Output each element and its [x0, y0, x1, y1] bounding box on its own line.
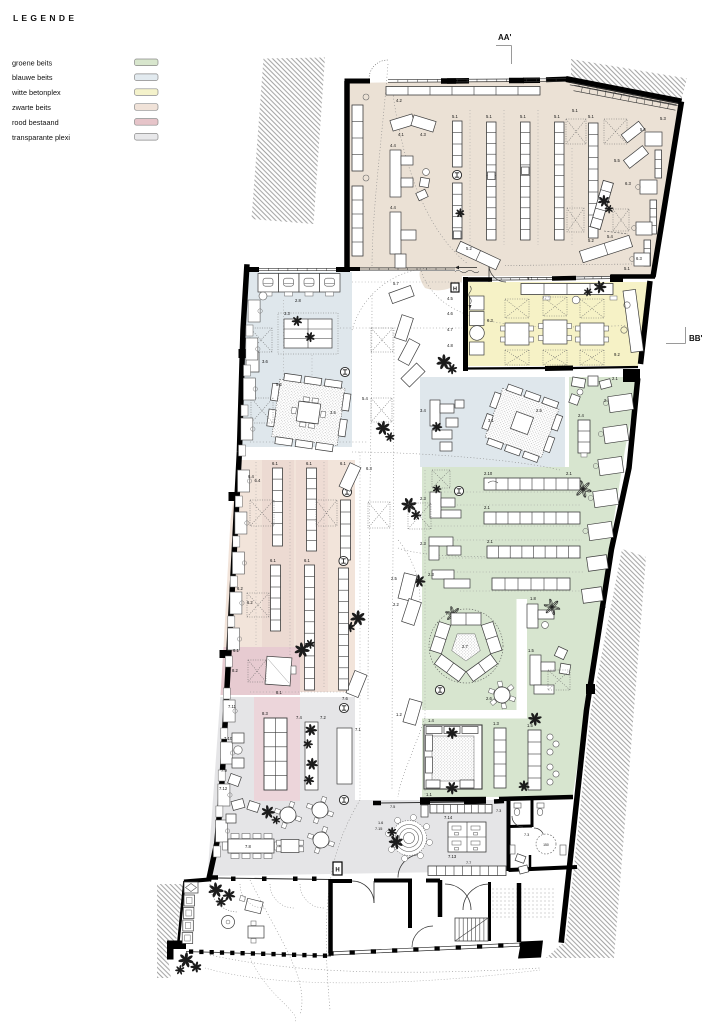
svg-text:7.11: 7.11 [228, 704, 237, 709]
svg-text:7.1: 7.1 [355, 727, 361, 732]
svg-text:7.3: 7.3 [524, 833, 529, 837]
svg-text:2.2: 2.2 [393, 602, 399, 607]
svg-text:9.1: 9.1 [527, 276, 533, 281]
svg-text:1.8: 1.8 [600, 604, 606, 609]
svg-text:5.4: 5.4 [362, 396, 368, 401]
svg-text:7.7: 7.7 [466, 861, 471, 865]
svg-text:3.6: 3.6 [262, 359, 268, 364]
svg-text:2.5: 2.5 [391, 576, 397, 581]
svg-text:7.5: 7.5 [390, 805, 395, 809]
svg-text:5.2: 5.2 [466, 246, 472, 251]
svg-text:1.1: 1.1 [426, 792, 432, 797]
svg-text:4.3: 4.3 [420, 132, 426, 137]
svg-text:5.4: 5.4 [607, 234, 613, 239]
svg-text:6.3: 6.3 [625, 181, 631, 186]
svg-text:1.4: 1.4 [428, 718, 434, 723]
svg-text:3.4: 3.4 [420, 408, 426, 413]
svg-text:5.6: 5.6 [640, 127, 646, 132]
svg-text:6.1: 6.1 [270, 558, 276, 563]
svg-text:4.1: 4.1 [398, 132, 404, 137]
svg-text:2.1: 2.1 [484, 505, 490, 510]
svg-text:1.6: 1.6 [378, 821, 383, 825]
svg-text:5.7: 5.7 [393, 281, 399, 286]
svg-text:5.2: 5.2 [276, 382, 282, 387]
svg-text:6.1: 6.1 [340, 461, 346, 466]
svg-text:4.4: 4.4 [390, 205, 396, 210]
svg-text:2.5: 2.5 [536, 408, 542, 413]
svg-text:2.7: 2.7 [462, 644, 468, 649]
svg-text:2.3: 2.3 [428, 572, 434, 577]
svg-text:7.14: 7.14 [444, 815, 453, 820]
svg-text:transparante plexi: transparante plexi [12, 133, 70, 142]
svg-text:5.1: 5.1 [572, 108, 578, 113]
svg-text:7.3: 7.3 [496, 809, 501, 813]
svg-text:2.10: 2.10 [484, 471, 493, 476]
svg-text:5.1: 5.1 [554, 114, 560, 119]
svg-text:2.6: 2.6 [486, 696, 492, 701]
svg-text:6.2: 6.2 [247, 600, 253, 605]
svg-text:4.6: 4.6 [447, 311, 453, 316]
svg-text:3.1: 3.1 [488, 418, 494, 423]
svg-text:7.12: 7.12 [219, 786, 228, 791]
svg-text:4.2: 4.2 [396, 98, 402, 103]
svg-text:4.4: 4.4 [390, 143, 396, 148]
svg-text:2.3: 2.3 [420, 496, 426, 501]
svg-text:rood bestaand: rood bestaand [12, 118, 59, 127]
svg-text:6.1: 6.1 [272, 461, 278, 466]
svg-text:5.1: 5.1 [588, 114, 594, 119]
svg-text:8.3: 8.3 [262, 711, 268, 716]
svg-text:7.15: 7.15 [375, 827, 382, 831]
svg-text:6.1: 6.1 [306, 461, 312, 466]
svg-text:5.1: 5.1 [520, 114, 526, 119]
svg-text:9.2: 9.2 [614, 352, 620, 357]
svg-text:5.1: 5.1 [486, 114, 492, 119]
svg-text:7.2: 7.2 [320, 715, 326, 720]
svg-text:1.2: 1.2 [396, 712, 402, 717]
svg-text:6.1: 6.1 [304, 558, 310, 563]
svg-text:1.8: 1.8 [530, 596, 536, 601]
svg-text:L E G E N D E: L E G E N D E [13, 13, 75, 23]
svg-text:5.2: 5.2 [588, 238, 594, 243]
svg-text:blauwe beits: blauwe beits [12, 73, 53, 82]
svg-text:2.8: 2.8 [295, 298, 301, 303]
svg-text:3.5: 3.5 [330, 410, 336, 415]
svg-text:6.2: 6.2 [237, 586, 243, 591]
svg-text:2.3: 2.3 [420, 541, 426, 546]
svg-text:8.1: 8.1 [276, 690, 282, 695]
svg-text:7.9: 7.9 [221, 768, 227, 773]
svg-text:6.3: 6.3 [636, 256, 642, 261]
svg-text:witte betonplex: witte betonplex [11, 88, 61, 97]
svg-text:5.1: 5.1 [624, 266, 630, 271]
svg-text:8.2: 8.2 [232, 668, 238, 673]
svg-text:3.3: 3.3 [284, 311, 290, 316]
svg-text:7.6: 7.6 [342, 696, 348, 701]
svg-text:7.10: 7.10 [224, 736, 233, 741]
svg-text:AA': AA' [498, 33, 512, 42]
svg-text:zwarte beits: zwarte beits [12, 103, 51, 112]
svg-text:5.3: 5.3 [660, 116, 666, 121]
svg-text:2.1: 2.1 [612, 376, 618, 381]
svg-text:6.3: 6.3 [366, 466, 372, 471]
svg-text:BB': BB' [689, 334, 703, 343]
svg-text:7.13: 7.13 [448, 854, 457, 859]
svg-text:9.3: 9.3 [487, 318, 493, 323]
svg-text:4.5: 4.5 [447, 296, 453, 301]
svg-text:7.4: 7.4 [296, 715, 302, 720]
svg-text:5.1: 5.1 [452, 114, 458, 119]
svg-text:5.5: 5.5 [614, 158, 620, 163]
svg-text:6.4: 6.4 [248, 474, 254, 479]
svg-text:2.1: 2.1 [487, 539, 493, 544]
svg-text:groene beits: groene beits [12, 58, 53, 67]
svg-text:H: H [453, 286, 457, 292]
svg-text:150: 150 [543, 843, 549, 847]
svg-text:2.1: 2.1 [566, 471, 572, 476]
svg-text:6.4: 6.4 [255, 478, 261, 483]
svg-text:H: H [335, 868, 339, 874]
svg-text:7.8: 7.8 [245, 844, 251, 849]
svg-text:6.1: 6.1 [233, 648, 239, 653]
svg-text:1.3: 1.3 [493, 721, 499, 726]
svg-text:4.8: 4.8 [447, 343, 453, 348]
svg-text:2.4: 2.4 [578, 413, 584, 418]
svg-text:1.5: 1.5 [528, 648, 534, 653]
svg-text:4.7: 4.7 [447, 327, 453, 332]
